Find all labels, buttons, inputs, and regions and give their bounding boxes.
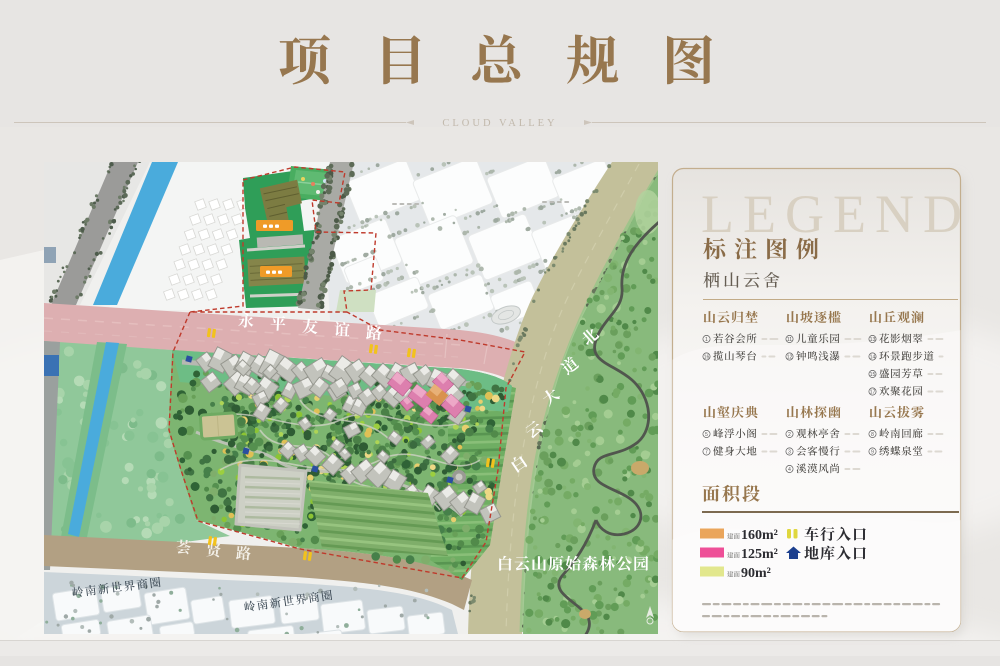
svg-text:8: 8: [871, 432, 874, 438]
svg-text:4: 4: [788, 467, 791, 473]
svg-text:9: 9: [871, 449, 874, 455]
svg-text:2: 2: [788, 432, 791, 438]
svg-text:12: 12: [787, 354, 793, 360]
svg-text:160m²: 160m²: [741, 528, 778, 543]
svg-text:125m²: 125m²: [741, 547, 778, 562]
svg-text:15: 15: [870, 372, 876, 378]
svg-text:14: 14: [870, 354, 876, 360]
svg-text:11: 11: [787, 337, 792, 343]
svg-text:5: 5: [705, 432, 708, 438]
svg-text:16: 16: [704, 354, 710, 360]
svg-text:LEGEND: LEGEND: [701, 184, 971, 244]
svg-text:3: 3: [788, 449, 791, 455]
svg-text:13: 13: [870, 337, 876, 343]
svg-text:1: 1: [705, 337, 708, 343]
svg-text:90m²: 90m²: [741, 566, 771, 581]
svg-text:7: 7: [705, 449, 708, 455]
svg-text:17: 17: [870, 389, 876, 395]
svg-text:CLOUD VALLEY: CLOUD VALLEY: [442, 118, 557, 129]
